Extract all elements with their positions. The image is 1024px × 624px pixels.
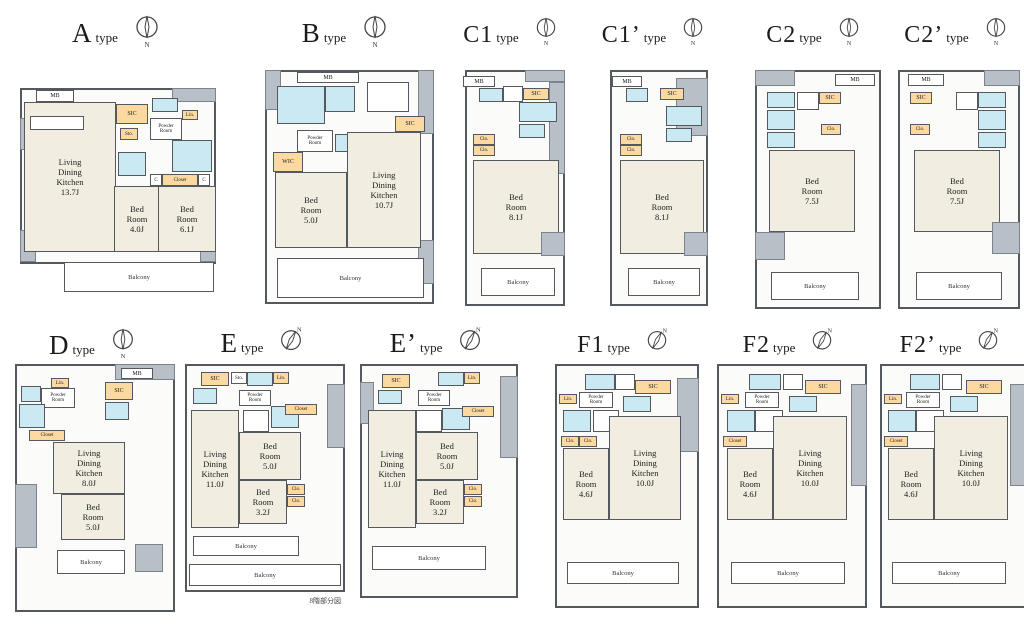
balcony: Balcony [771,272,859,300]
wc [942,374,962,390]
wc [118,152,146,176]
room-ldk: Living Dining Kitchen 10.0J [773,416,847,520]
powder-room: Powder Room [418,390,450,406]
wc [105,402,129,420]
kitchen-counter [30,116,84,130]
linen-closet: Lin. [51,378,69,388]
stairs [243,410,269,432]
unit-c1-type-suffix: type [496,30,518,45]
unit-f1-name: F1 [577,332,604,358]
powder-room: Powder Room [745,392,779,408]
closet: Clo. [464,496,482,507]
floorplan-sheet: Atype N MB Living Dining Kitchen 13.7J S… [0,0,1024,624]
balcony: Balcony [731,562,845,584]
closet: Closet [285,404,317,415]
lavatory [978,92,1006,108]
unit-f2-type-suffix: type [773,340,795,355]
meter-box: MB [463,76,495,87]
bathroom [888,410,916,432]
unit-b-plan: MB SIC Powder Room WIC Bed Room 5.0J Liv… [265,70,434,304]
shoe-closet: SIC [201,372,229,386]
lavatory [325,86,355,112]
wc-2 [789,396,817,412]
bathroom [19,404,45,428]
structure-block [172,88,216,102]
balcony: Balcony [64,262,214,292]
unit-e-plan: SIC Sto. Lin. Powder Room Living Dining … [185,364,345,592]
closet: Clo. [620,134,642,145]
closet: Closet [462,406,494,417]
stairs [956,92,978,110]
powder-room: Powder Room [150,118,182,140]
wc [615,374,635,390]
closet: Closet [723,436,747,447]
unit-c2p: C2’type N MB SIC Clo. Bed Room 7.5J Balc… [893,12,1020,306]
closet: Clo. [287,496,305,507]
powder-room: Powder Room [579,392,613,408]
wc [479,88,503,102]
svg-text:N: N [544,41,549,47]
unit-c1p: C1’type N MB SIC Clo. Clo. Bed Room 8.1J… [598,12,710,306]
shoe-closet: SIC [105,382,133,400]
wc [783,374,803,390]
room-ldk: Living Dining Kitchen 11.0J [191,410,239,528]
bathroom [727,410,755,432]
unit-d-type-suffix: type [73,342,95,357]
unit-a-title: Atype N [18,12,216,58]
unit-e-name: E [221,328,239,358]
wc [626,88,648,102]
unit-ep-type-suffix: type [420,340,442,355]
wc [193,388,217,404]
lavatory [438,372,464,386]
compass-icon: N [983,12,1009,50]
unit-f1-plan: SIC Lin. Powder Room Clo. Clo. Bed Room … [555,364,699,608]
unit-f2p-type-suffix: type [939,340,961,355]
meter-box: MB [612,76,642,87]
compass-icon: N [809,324,835,360]
compass-icon: N [277,324,305,360]
linen-closet: Lin. [464,372,480,384]
meter-box: MB [835,74,875,86]
lavatory [152,98,178,112]
stairs [367,82,409,112]
unit-c2p-name: C2’ [904,22,943,48]
closet: Closet [29,430,65,441]
meter-box: MB [908,74,944,86]
compass-icon: N [836,12,862,50]
structure-block [684,232,708,256]
bathroom [172,140,212,172]
compass-icon: N [680,12,706,50]
structure-block [851,384,867,486]
room-ldk: Living Dining Kitchen 11.0J [368,410,416,528]
balcony: Balcony [567,562,679,584]
room-bed: Bed Room 4.6J [888,448,934,520]
closet: Clo. [620,145,642,156]
closet: Closet [884,436,908,447]
unit-c2p-title: C2’type N [893,12,1020,58]
powder-room: Powder Room [297,130,333,152]
closet: Clo. [473,134,495,145]
shoe-closet: SIC [660,88,684,100]
bathroom [978,110,1006,130]
shoe-closet: SIC [116,104,148,124]
bathroom [519,102,557,122]
shoe-closet: SIC [635,380,671,394]
svg-text:N: N [994,328,999,334]
shoe-closet: SIC [395,116,425,132]
room-ldk: Living Dining Kitchen 8.0J [53,442,125,494]
closet-c: C [150,174,162,186]
balcony: Balcony [193,536,299,556]
powder-room: Powder Room [906,392,940,408]
structure-block [1010,384,1024,486]
stairs [797,92,819,110]
balcony: Balcony [189,564,341,586]
storage: Sto. [120,128,138,140]
unit-c1-title: C1type N [455,12,567,58]
linen-closet: Lin. [884,394,902,404]
closet: Clo. [910,124,930,135]
wc-2 [950,396,978,412]
balcony: Balcony [628,268,700,296]
svg-text:N: N [144,41,149,49]
balcony: Balcony [892,562,1006,584]
unit-c2-title: C2type N [748,12,880,58]
unit-b-type-suffix: type [324,30,346,45]
closet: Clo. [561,436,579,447]
wc-2 [623,396,651,412]
unit-a: Atype N MB Living Dining Kitchen 13.7J S… [18,12,216,298]
unit-d-name: D [49,330,70,360]
unit-d: Dtype N MB Lin. SIC Powder Room Closet L… [12,324,174,618]
meter-box: MB [36,90,74,102]
room-bed-1: Bed Room 5.0J [416,432,478,480]
unit-d-plan: MB Lin. SIC Powder Room Closet Living Di… [15,364,175,612]
compass-icon: N [644,324,670,360]
structure-block [525,70,565,82]
svg-text:N: N [121,353,126,360]
unit-c2: C2type N MB SIC Clo. Bed Room 7.5J Balco… [748,12,880,306]
lavatory [585,374,615,390]
unit-c2-plan: MB SIC Clo. Bed Room 7.5J Balcony [755,70,881,309]
unit-c1p-name: C1’ [602,22,641,48]
svg-text:N: N [373,41,378,49]
meter-box: MB [297,72,359,83]
room-bed: Bed Room 7.5J [769,150,855,232]
plan-note: 8階部分図 [183,596,341,606]
room-bed-1: Bed Room 5.0J [239,432,301,480]
compass-icon: N [360,12,390,50]
closet-c: C [198,174,210,186]
structure-block [135,544,163,572]
wc [378,390,402,404]
room-bed: Bed Room 7.5J [914,150,1000,232]
room-bed: Bed Room 5.0J [61,494,125,540]
room-bed-2: Bed Room 6.1J [158,186,216,252]
compass-icon: N [109,324,137,362]
unit-a-plan: MB Living Dining Kitchen 13.7J SIC Lin. … [20,88,216,264]
shoe-closet: SIC [819,92,841,104]
unit-b: Btype N MB SIC Powder Room WIC Bed Room … [258,12,434,310]
closet: Closet [162,174,198,186]
linen-closet: Lin. [721,394,739,404]
balcony: Balcony [916,272,1002,300]
structure-block [500,376,518,458]
unit-c1-name: C1 [463,22,493,48]
shoe-closet: SIC [966,380,1002,394]
structure-block [541,232,565,256]
bathroom [767,110,795,130]
balcony: Balcony [481,268,555,296]
unit-c1-plan: MB SIC Clo. Clo. Bed Room 8.1J Balcony [465,70,565,306]
lavatory [247,372,273,386]
closet: Clo. [287,484,305,495]
unit-f2: F2type N SIC Lin. Powder Room Closet Bed… [712,324,866,618]
unit-f2p-name: F2’ [900,332,936,358]
closet: Clo. [821,124,841,135]
shoe-closet: SIC [910,92,932,104]
powder-room: Powder Room [239,390,271,406]
room-bed: Bed Room 5.0J [275,172,347,248]
room-ldk: Living Dining Kitchen 10.0J [934,416,1008,520]
compass-icon: N [456,324,484,360]
svg-text:N: N [662,328,667,334]
compass-icon: N [975,324,1001,360]
room-bed: Bed Room 4.6J [727,448,773,520]
unit-e: Etype N SIC Sto. Lin. Powder Room Living… [183,324,343,624]
lavatory [666,128,692,142]
room-ldk: Living Dining Kitchen 10.0J [609,416,681,520]
unit-ep-name: E’ [390,328,417,358]
unit-c2p-type-suffix: type [946,30,968,45]
walk-in-closet: WIC [273,152,303,172]
unit-f1-type-suffix: type [607,340,629,355]
unit-c1: C1type N MB SIC Clo. Clo. Bed Room 8.1J … [455,12,567,306]
structure-block [327,384,345,448]
closet: Clo. [473,145,495,156]
closet: Clo. [464,484,482,495]
wc [767,132,795,148]
unit-ep-plan: SIC Lin. Powder Room Living Dining Kitch… [360,364,518,598]
lavatory [910,374,940,390]
room-ldk: Living Dining Kitchen 10.7J [347,132,421,248]
structure-block [992,222,1020,254]
powder-room: Powder Room [41,388,75,408]
unit-c2-type-suffix: type [799,30,821,45]
linen-closet: Lin. [182,110,198,120]
structure-block [755,70,795,86]
wc [978,132,1006,148]
svg-text:N: N [691,41,696,47]
unit-f2-name: F2 [743,332,770,358]
lavatory [519,124,545,138]
unit-f2-plan: SIC Lin. Powder Room Closet Bed Room 4.6… [717,364,867,608]
balcony: Balcony [277,258,424,298]
bathroom [563,410,591,432]
structure-block [15,484,37,548]
unit-c1p-plan: MB SIC Clo. Clo. Bed Room 8.1J Balcony [610,70,708,306]
compass-icon: N [533,12,559,50]
unit-c1p-title: C1’type N [598,12,710,58]
structure-block [984,70,1020,86]
balcony: Balcony [57,550,125,574]
room-bed: Bed Room 4.6J [563,448,609,520]
unit-ep: E’type N SIC Lin. Powder Room Living Din… [358,324,516,620]
bathroom [277,86,325,124]
shoe-closet: SIC [805,380,841,394]
unit-f2p: F2’type N SIC Lin. Powder Room Closet Be… [877,324,1024,618]
bathroom [666,106,702,126]
stairs [503,86,523,102]
unit-a-name: A [72,18,93,48]
unit-c1p-type-suffix: type [644,30,666,45]
room-bed-1: Bed Room 4.0J [114,186,160,252]
closet: Clo. [579,436,597,447]
lavatory [767,92,795,108]
linen-closet: Lin. [273,372,289,384]
shoe-closet: SIC [382,374,410,388]
storage: Sto. [231,372,247,384]
compass-icon: N [132,12,162,50]
unit-b-name: B [302,18,321,48]
svg-text:N: N [847,41,852,47]
unit-f1: F1type N SIC Lin. Powder Room Clo. Clo. … [550,324,697,618]
unit-a-type-suffix: type [96,30,118,45]
svg-text:N: N [994,41,999,47]
unit-b-title: Btype N [258,12,434,58]
unit-f2p-plan: SIC Lin. Powder Room Closet Bed Room 4.6… [880,364,1024,608]
stairs [416,410,442,432]
unit-c2-name: C2 [766,22,796,48]
structure-block [755,232,785,260]
shoe-closet: SIC [523,88,549,100]
balcony: Balcony [372,546,486,570]
unit-e-type-suffix: type [241,340,263,355]
room-bed-2: Bed Room 3.2J [239,480,287,524]
unit-c2p-plan: MB SIC Clo. Bed Room 7.5J Balcony [898,70,1020,309]
svg-text:N: N [476,327,481,334]
svg-text:N: N [828,328,833,334]
svg-text:N: N [297,327,302,334]
lavatory [749,374,781,390]
meter-box: MB [121,368,153,379]
linen-closet: Lin. [559,394,577,404]
room-bed-2: Bed Room 3.2J [416,480,464,524]
lavatory [21,386,41,402]
